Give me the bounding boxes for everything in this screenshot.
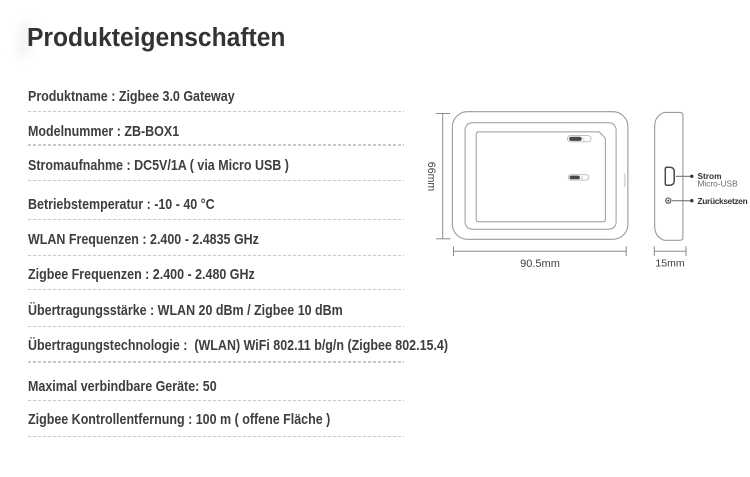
svg-text:Micro-USB: Micro-USB	[698, 178, 739, 188]
svg-text:15mm: 15mm	[655, 258, 684, 270]
svg-text:90.5mm: 90.5mm	[520, 258, 560, 270]
svg-text:66mm: 66mm	[425, 162, 437, 192]
svg-text:Zurücksetzen: Zurücksetzen	[698, 196, 748, 206]
